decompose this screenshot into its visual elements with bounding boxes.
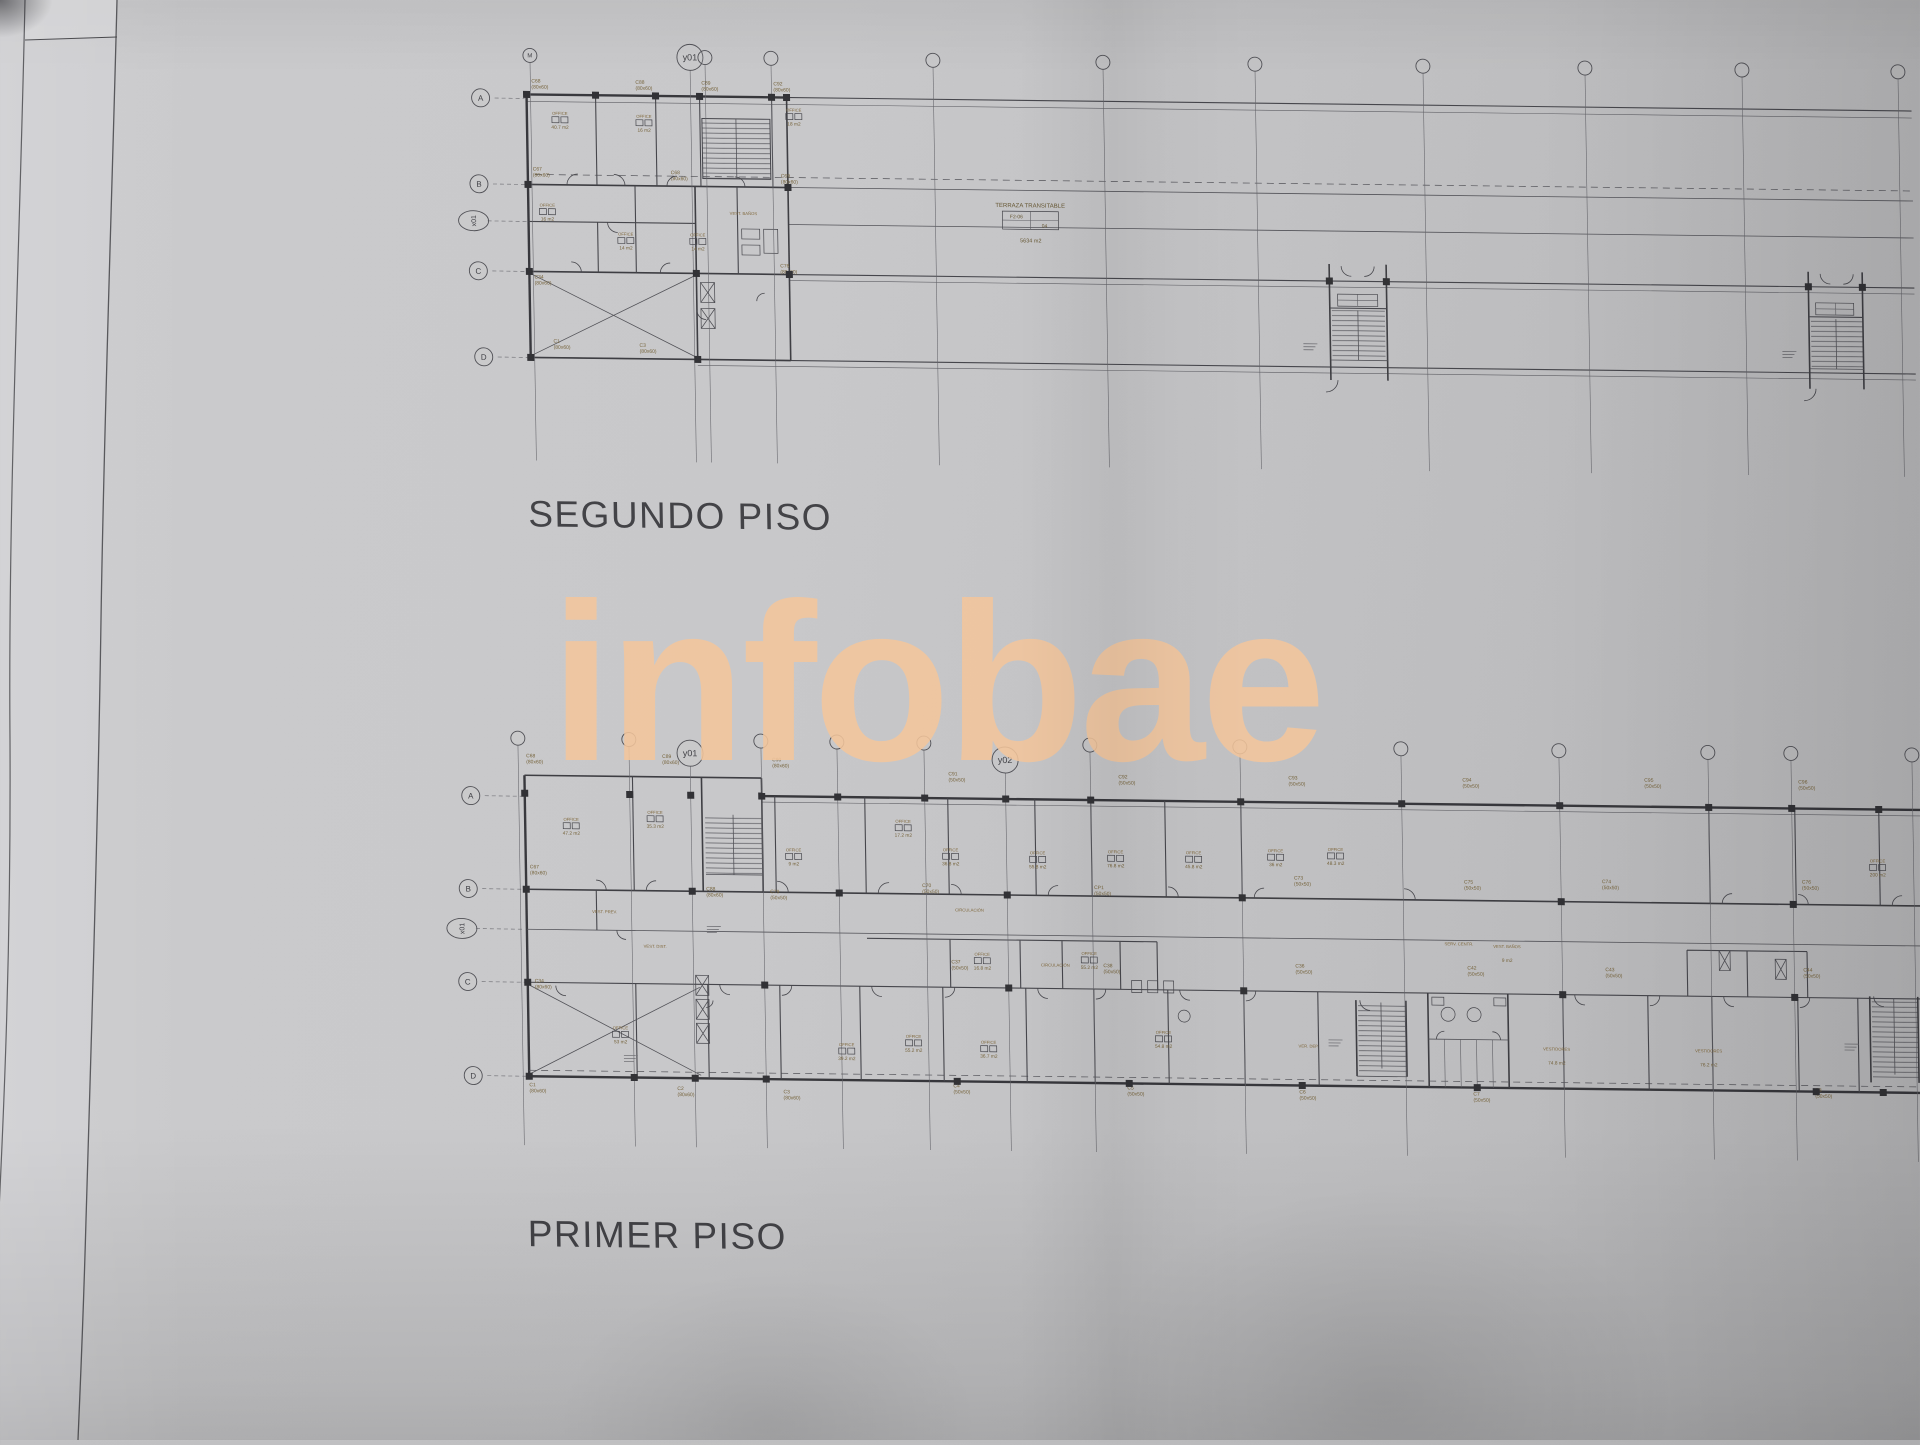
- room-tag-name: OFFICE: [839, 1042, 855, 1047]
- grid-row-leader: [476, 929, 525, 930]
- room-tag-name: OFFICE: [786, 847, 802, 852]
- room-tag-box: [906, 1040, 913, 1046]
- column-tag-size: (80x60): [773, 87, 790, 93]
- room-tag-name: OFFICE: [1030, 850, 1046, 855]
- grid-row-leader: [482, 982, 526, 983]
- room-tag-name: VEST. BAÑOS: [1493, 944, 1521, 949]
- room-tag-name: OFFICE: [563, 817, 579, 822]
- grid-line: [837, 749, 843, 1149]
- room-tag-name: OFFICE: [540, 203, 556, 208]
- door-arc: [1820, 274, 1830, 284]
- grid-marker-label: C: [465, 977, 471, 986]
- room-tag-box: [839, 1048, 846, 1054]
- door-arc: [1254, 888, 1264, 898]
- column-node: [768, 94, 775, 101]
- column-tag-size: (80x60): [531, 84, 548, 90]
- room-tag-name: OFFICE: [1268, 848, 1284, 853]
- room-tag-area: 55.2 m2: [1081, 965, 1099, 971]
- grid-line: [771, 65, 777, 463]
- room-tag-name: OFFICE: [786, 108, 802, 113]
- room-tag-box: [572, 823, 579, 829]
- grid-marker-label: A: [478, 94, 484, 103]
- grid-line: [1103, 69, 1109, 467]
- grid-marker-circle: [1891, 65, 1905, 79]
- grid-line: [690, 766, 696, 1147]
- column-tag-size: (80x60): [635, 86, 652, 92]
- door-arc: [1038, 988, 1048, 998]
- column-tag-size: (50x50): [1644, 784, 1661, 790]
- column-node: [694, 356, 701, 363]
- room-tag-box: [974, 958, 981, 964]
- room-tag-area: 47.2 m2: [563, 831, 581, 837]
- column-node: [836, 889, 843, 896]
- grid-line: [1898, 79, 1904, 477]
- column-node: [761, 982, 768, 989]
- room-tag-box: [563, 823, 570, 829]
- grid-line: [1423, 73, 1429, 471]
- grid-marker-label: C: [475, 267, 481, 276]
- room-tag-name: OFFICE: [1186, 850, 1202, 855]
- room-tag-area: 40.7 m2: [551, 125, 569, 131]
- door-arc: [1048, 886, 1058, 896]
- column-node: [1880, 1089, 1887, 1096]
- column-node: [1239, 894, 1246, 901]
- column-tag-size: (50x50): [770, 895, 787, 901]
- segundo-left-wing: [527, 94, 791, 360]
- column-tag-size: (50x50): [1094, 891, 1111, 897]
- door-arc: [1650, 996, 1660, 1006]
- grid-line: [1255, 71, 1261, 469]
- grid-marker-circle: [1701, 745, 1715, 759]
- column-tag-size: (50x50): [953, 1089, 970, 1095]
- primer-stairs: [705, 814, 1919, 1083]
- grid-marker-label: M: [527, 53, 532, 59]
- room-tag-name: OFFICE: [981, 1040, 997, 1045]
- door-arc: [1800, 998, 1810, 1008]
- room-tag-box: [795, 853, 802, 859]
- door-arc: [1724, 997, 1734, 1007]
- grid-marker-circle: [764, 51, 778, 65]
- grid-marker-label: B: [466, 885, 471, 894]
- column-node: [523, 886, 530, 893]
- column-tag-size: (50x50): [1464, 885, 1481, 891]
- grid-marker-circle: [1416, 59, 1430, 73]
- door-arc: [720, 985, 730, 995]
- door-arc: [1168, 887, 1178, 897]
- grid-marker-circle: [1248, 57, 1262, 71]
- room-tag-box: [848, 1048, 855, 1054]
- room-tag-area: 200 m2: [1870, 872, 1886, 878]
- column-tag-size: (80x60): [784, 1095, 801, 1101]
- column-tag-size: (50x50): [951, 965, 968, 971]
- room-tag-area: 53 m2: [614, 1039, 628, 1045]
- column-node: [526, 1073, 533, 1080]
- column-node: [524, 181, 531, 188]
- room-tag-area: 16 m2: [637, 128, 651, 134]
- primer-grid-rows: ABx01CD: [445, 786, 528, 1085]
- door-arc: [1364, 266, 1374, 276]
- column-tag-size: (50x50): [1605, 973, 1622, 979]
- terrace-number: 04: [1042, 224, 1048, 230]
- room-tag-area: 39.2 m2: [838, 1056, 856, 1062]
- room-tag-box: [1328, 853, 1335, 859]
- terrace-label-block: TERRAZA TRANSITABLE F2-06 04 5634 m2: [995, 203, 1065, 245]
- column-node: [1788, 805, 1795, 812]
- column-tag-size: (80x60): [535, 984, 552, 990]
- room-tag-area: 9 m2: [1502, 958, 1513, 964]
- room-tag-name: OFFICE: [1081, 951, 1097, 956]
- room-tag-name: SERV. CENTR.: [1444, 941, 1473, 946]
- column-node: [1791, 994, 1798, 1001]
- column-tag-size: (50x50): [1798, 786, 1815, 792]
- room-tag-area: 55.8 m2: [1029, 864, 1047, 870]
- grid-marker-label: B: [476, 180, 481, 189]
- column-tag-size: (80x60): [526, 759, 543, 765]
- room-tag-name: VESTIDORES: [1695, 1048, 1722, 1053]
- column-node: [524, 979, 531, 986]
- column-node: [693, 270, 700, 277]
- room-tag-name: VESTIDORES: [1543, 1046, 1570, 1051]
- column-node: [526, 268, 533, 275]
- room-tag-area: 16 m2: [541, 217, 555, 223]
- door-arc: [951, 884, 961, 894]
- room-tag-box: [1108, 855, 1115, 861]
- door-arc: [1404, 889, 1415, 900]
- grid-row-leader: [482, 889, 524, 890]
- column-node: [1240, 987, 1247, 994]
- column-node: [783, 94, 790, 101]
- column-node: [592, 92, 599, 99]
- column-node: [1398, 800, 1405, 807]
- door-arc: [757, 293, 765, 301]
- door-arc: [1436, 1031, 1444, 1039]
- column-node: [1383, 278, 1390, 285]
- blueprint-photo: TERRAZA TRANSITABLE F2-06 04 5634 m2 My0…: [0, 0, 1920, 1440]
- segundo-grid-columns: My01: [523, 42, 1912, 477]
- column-node: [1005, 984, 1012, 991]
- column-tag-size: (80x60): [533, 172, 550, 178]
- column-tag-size: (80x60): [706, 892, 723, 898]
- room-tag-box: [952, 853, 959, 859]
- column-tag-size: (50x50): [922, 889, 939, 895]
- column-tag-size: (50x50): [1294, 881, 1311, 887]
- room-tag-name: OFFICE: [1156, 1030, 1172, 1035]
- column-node: [1790, 901, 1797, 908]
- room-tag-area: 18 m2: [787, 122, 801, 128]
- elevator-shaft: [701, 282, 716, 328]
- door-arc: [872, 986, 882, 996]
- room-tag-name: VEST. PREV.: [592, 909, 617, 914]
- column-node: [1556, 802, 1563, 809]
- column-node: [523, 91, 530, 98]
- column-node: [954, 1078, 961, 1085]
- room-tag-box: [539, 209, 546, 215]
- room-tag-name: OFFICE: [618, 231, 634, 236]
- column-tag-size: (50x50): [1602, 885, 1619, 891]
- room-tag-name: OFFICE: [647, 810, 663, 815]
- column-tag-size: (80x60): [677, 1092, 694, 1098]
- column-node: [1004, 891, 1011, 898]
- room-tag-name: OFFICE: [1328, 847, 1344, 852]
- room-tag-area: 48.3 m2: [1327, 861, 1345, 867]
- room-tag-box: [786, 853, 793, 859]
- grid-line: [1742, 77, 1748, 475]
- column-node: [1326, 277, 1333, 284]
- room-tag-area: 35.3 m2: [647, 824, 665, 830]
- room-tag-box: [895, 825, 902, 831]
- room-tag-area: 16.8 m2: [974, 966, 992, 972]
- room-tag-name: OFFICE: [690, 232, 706, 237]
- door-arc: [1096, 989, 1106, 999]
- room-tag-name: VER. DEP.: [1298, 1043, 1318, 1048]
- door-arc: [1341, 266, 1351, 276]
- grid-line: [1559, 758, 1565, 1158]
- column-node: [652, 92, 659, 99]
- room-tag-box: [795, 114, 802, 120]
- room-tag-box: [699, 238, 706, 244]
- door-arc: [782, 985, 792, 995]
- door-arc: [556, 986, 566, 996]
- room-tag-area: 14 m2: [619, 245, 633, 251]
- column-node: [1299, 1082, 1306, 1089]
- grid-marker-label: y01: [683, 52, 698, 62]
- room-tag-area: 36 m2: [1269, 862, 1283, 868]
- room-tag-area: 14 m2: [691, 246, 705, 252]
- grid-line: [690, 70, 696, 462]
- room-tag-area: 74.8 m2: [1548, 1060, 1566, 1066]
- primer-piso-title: PRIMER PISO: [527, 1213, 787, 1257]
- room-tag-box: [1186, 856, 1193, 862]
- infobae-watermark: infobae: [550, 556, 1322, 808]
- room-tag-area: 9 m2: [788, 861, 799, 867]
- room-tag-box: [1268, 854, 1275, 860]
- terrace-title: TERRAZA TRANSITABLE: [995, 203, 1065, 210]
- column-node: [696, 93, 703, 100]
- grid-marker-label: D: [481, 353, 487, 362]
- column-node: [763, 1076, 770, 1083]
- grid-line: [530, 62, 536, 460]
- grid-marker-circle: [1552, 744, 1566, 758]
- room-tag-area: 76.8 m2: [1107, 863, 1125, 869]
- door-arc: [1180, 990, 1190, 1000]
- room-tag-area: 36.8 m2: [942, 861, 960, 867]
- room-tag-box: [1081, 957, 1088, 963]
- column-node: [1805, 283, 1812, 290]
- column-node: [1474, 1084, 1481, 1091]
- room-tag-box: [981, 1046, 988, 1052]
- room-tag-box: [656, 816, 663, 822]
- room-tag-box: [561, 117, 568, 123]
- grid-marker-label: D: [470, 1072, 476, 1081]
- column-tag-size: (50x50): [1802, 886, 1819, 892]
- column-tag-size: (80x60): [554, 345, 571, 351]
- grid-marker-circle: [1096, 55, 1110, 69]
- door-arc: [614, 174, 625, 185]
- column-tag-size: (50x50): [1299, 1095, 1316, 1101]
- grid-marker-circle: [1784, 746, 1798, 760]
- room-tag-name: CIRCULACIÓN: [955, 907, 984, 912]
- column-tag-size: (50x50): [1103, 969, 1120, 975]
- door-arc: [1722, 894, 1732, 904]
- room-tag-name: VEST. DIST.: [644, 944, 667, 949]
- segundo-piso-title: SEGUNDO PISO: [528, 493, 832, 538]
- room-tag-box: [1337, 853, 1344, 859]
- segundo-stair-block-2: [1808, 272, 1864, 390]
- stair-hatch: [1872, 998, 1919, 1081]
- door-arc: [596, 880, 606, 890]
- paper-edges: [0, 0, 117, 1440]
- column-tag-size: (50x50): [1295, 969, 1312, 975]
- segundo-grid-rows: ABx01CD: [456, 89, 528, 367]
- door-arc: [1892, 896, 1902, 906]
- column-node: [1875, 806, 1882, 813]
- column-node: [1558, 898, 1565, 905]
- room-tag-area: 45.8 m2: [1185, 864, 1203, 870]
- primer-elevator-shafts: [695, 938, 1788, 1056]
- column-tag-size: (80x60): [535, 280, 552, 286]
- room-tag-box: [1090, 957, 1097, 963]
- door-arc: [945, 987, 955, 997]
- room-tag-name: OFFICE: [906, 1034, 922, 1039]
- room-tag-name: OFFICE: [895, 819, 911, 824]
- door-arc: [1575, 995, 1585, 1005]
- column-node: [786, 271, 793, 278]
- grid-line: [1401, 756, 1407, 1156]
- terrace-area: 5634 m2: [1020, 238, 1042, 244]
- room-tag-name: CIRCULACIÓN: [1041, 962, 1070, 967]
- column-tag-size: (50x50): [1473, 1098, 1490, 1104]
- column-node: [692, 1075, 699, 1082]
- door-arc: [1843, 274, 1853, 284]
- grid-line: [1708, 759, 1714, 1159]
- room-tag-box: [647, 816, 654, 822]
- door-arc: [571, 262, 581, 272]
- grid-marker-circle: [1735, 63, 1749, 77]
- grid-marker-circle: [698, 50, 712, 64]
- room-tag-box: [1870, 864, 1877, 870]
- grid-marker-circle: [1905, 748, 1919, 762]
- grid-marker-circle: [926, 53, 940, 67]
- room-tag-box: [915, 1040, 922, 1046]
- column-tag-size: (50x50): [1803, 974, 1820, 980]
- grid-marker-label: A: [468, 792, 474, 801]
- column-node: [521, 790, 528, 797]
- room-tag-box: [1195, 856, 1202, 862]
- room-tag-box: [1155, 1036, 1162, 1042]
- grid-marker-label: x01: [471, 215, 478, 226]
- room-tag-area: 55.2 m2: [905, 1048, 923, 1054]
- room-tag-box: [627, 238, 634, 244]
- column-tag-size: (50x50): [1467, 972, 1484, 978]
- door-arc: [1804, 389, 1816, 401]
- grid-line: [1912, 762, 1918, 1162]
- stair-hatch: [1358, 1002, 1407, 1075]
- grid-marker-circle: [1578, 61, 1592, 75]
- room-tag-name: OFFICE: [1108, 849, 1124, 854]
- room-tag-name: VEST. BAÑOS: [730, 211, 758, 216]
- room-tag-box: [1039, 856, 1046, 862]
- room-tag-box: [983, 958, 990, 964]
- column-node: [1705, 804, 1712, 811]
- room-tag-area: 76.2 m2: [1700, 1062, 1718, 1068]
- grid-line: [761, 748, 767, 1148]
- column-tag-size: (50x50): [1462, 783, 1479, 789]
- room-tag-box: [645, 120, 652, 126]
- door-arc: [608, 222, 618, 232]
- door-arc: [617, 930, 626, 939]
- room-tag-box: [990, 1046, 997, 1052]
- door-arc: [1246, 991, 1256, 1001]
- room-tag-area: 17.2 m2: [895, 833, 913, 839]
- column-node: [1126, 1080, 1133, 1087]
- column-node: [784, 184, 791, 191]
- column-node: [631, 1074, 638, 1081]
- room-tag-box: [904, 825, 911, 831]
- room-tag-name: OFFICE: [552, 111, 568, 116]
- grid-line: [1585, 75, 1591, 473]
- stair-hatch: [1811, 319, 1864, 370]
- door-arc: [697, 310, 706, 319]
- column-tag-size: (80x60): [529, 1088, 546, 1094]
- column-node: [1859, 284, 1866, 291]
- column-node: [1813, 1088, 1820, 1095]
- door-arc: [567, 174, 578, 185]
- segundo-piso-plan: TERRAZA TRANSITABLE F2-06 04 5634 m2 My0…: [456, 42, 1918, 477]
- door-arc: [1798, 895, 1808, 905]
- room-tag-box: [552, 117, 559, 123]
- room-tag-name: OFFICE: [943, 847, 959, 852]
- column-node: [1559, 991, 1566, 998]
- terrace-code: F2-06: [1010, 214, 1023, 220]
- door-arc: [1326, 380, 1338, 392]
- room-tag-name: OFFICE: [636, 114, 652, 119]
- grid-line: [518, 745, 524, 1145]
- room-tag-box: [618, 237, 625, 243]
- grid-marker-label: x01: [459, 923, 466, 934]
- grid-marker-circle: [1394, 742, 1408, 756]
- column-node: [689, 888, 696, 895]
- grid-marker-circle: [511, 731, 525, 745]
- column-tag-size: (80x60): [530, 870, 547, 876]
- door-arc: [660, 263, 670, 273]
- grid-line: [1791, 760, 1797, 1160]
- door-arc: [1492, 1032, 1500, 1040]
- grid-line: [933, 67, 939, 465]
- grid-line: [1005, 773, 1011, 1151]
- door-arc: [646, 881, 656, 891]
- room-tag-name: OFFICE: [1870, 858, 1886, 863]
- room-tag-name: OFFICE: [974, 952, 990, 957]
- room-tag-name: OFFICE: [613, 1025, 629, 1030]
- room-tag-box: [1117, 855, 1124, 861]
- room-tag-area: 54.8 m2: [1155, 1044, 1173, 1050]
- grid-line: [924, 750, 930, 1150]
- door-arc: [878, 882, 889, 893]
- primer-bathrooms: [1132, 980, 1510, 1088]
- room-tag-box: [1277, 854, 1284, 860]
- grid-line: [1240, 754, 1246, 1154]
- door-arc: [706, 1000, 713, 1007]
- under-page-fill-2: [25, 0, 117, 40]
- room-tag-area: 36.7 m2: [980, 1054, 998, 1060]
- column-tag-size: (80x60): [701, 86, 718, 92]
- room-tag-box: [548, 209, 555, 215]
- column-node: [527, 354, 534, 361]
- column-tag-size: (80x60): [640, 349, 657, 355]
- column-tag-size: (50x50): [1127, 1091, 1144, 1097]
- room-tag-box: [636, 120, 643, 126]
